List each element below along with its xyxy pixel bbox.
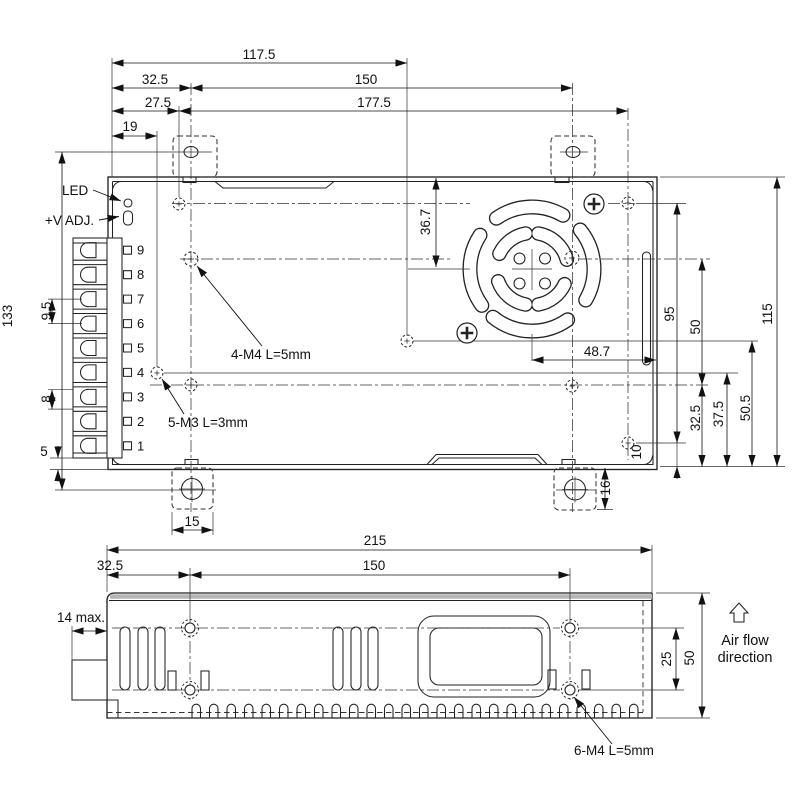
terminal-number-labels: 9 8 7 6 5 4 3 2 1 — [137, 243, 144, 454]
dim-32-5-side: 32.5 — [97, 558, 123, 573]
dim-37-5: 37.5 — [711, 401, 726, 427]
mounting-tabs — [172, 136, 596, 510]
top-seam-slot — [215, 182, 334, 189]
dim-177-5: 177.5 — [357, 95, 391, 110]
terminal-pin-marks — [124, 246, 132, 450]
dim-117-5: 117.5 — [243, 47, 276, 62]
side-dimension-lines — [72, 550, 702, 718]
psu-mechanical-drawing: 9 8 7 6 5 4 3 2 1 — [0, 0, 800, 800]
leader-6m4 — [574, 697, 612, 744]
mounting-tab — [551, 136, 595, 177]
mounting-tab — [172, 468, 213, 509]
fan-hub-hole — [514, 253, 525, 264]
dim-32-5: 32.5 — [142, 72, 168, 87]
note-4m4: 4-M4 L=5mm — [231, 347, 311, 362]
side-extension-lines — [72, 545, 710, 718]
top-view: 9 8 7 6 5 4 3 2 1 — [0, 47, 785, 535]
dim-50: 50 — [688, 319, 703, 334]
side-vent-slot — [643, 252, 651, 365]
terminal-block: 9 8 7 6 5 4 3 2 1 — [73, 238, 144, 458]
dim-16: 16 — [598, 480, 613, 495]
led-indicator-icon — [124, 199, 132, 207]
airflow-arrow-icon — [730, 603, 748, 622]
leader-vadj — [99, 217, 119, 221]
bottom-vent-slots — [192, 704, 638, 717]
fan-hub-hole — [540, 278, 551, 289]
leader-5m3 — [162, 379, 184, 414]
dim-50-5: 50.5 — [738, 395, 753, 421]
terminal-number: 2 — [137, 414, 144, 429]
terminal-number: 5 — [137, 341, 144, 356]
dim-48-7: 48.7 — [584, 344, 610, 359]
terminal-number: 6 — [137, 316, 144, 331]
dim-150: 150 — [355, 72, 378, 87]
note-5m3: 5-M3 L=3mm — [168, 415, 248, 430]
dim-36-7: 36.7 — [418, 209, 433, 235]
terminal-number: 8 — [137, 267, 144, 282]
terminal-block-side — [72, 660, 107, 700]
led-label: LED — [62, 183, 89, 198]
terminal-number: 9 — [137, 243, 144, 258]
terminal-number: 3 — [137, 389, 144, 404]
fan-hub-hole — [514, 278, 525, 289]
airflow-label-2: direction — [718, 650, 773, 666]
dim-8: 8 — [39, 395, 54, 403]
dim-32-5-right: 32.5 — [688, 405, 703, 431]
dimension-lines-top — [52, 63, 777, 530]
side-features — [120, 616, 638, 718]
airflow-label-1: Air flow — [721, 633, 769, 649]
side-centerlines — [112, 568, 684, 700]
vadj-label: +V ADJ. — [45, 213, 94, 228]
label-recess-inner — [430, 628, 542, 685]
dim-15: 15 — [184, 514, 199, 529]
terminal-number: 7 — [137, 292, 144, 307]
dim-115: 115 — [760, 303, 775, 325]
dim-19: 19 — [122, 119, 137, 134]
fan-grille — [470, 207, 594, 331]
tab-notch — [562, 460, 575, 465]
leader-4m4 — [197, 266, 262, 346]
voltage-adjust-pot-icon — [124, 211, 133, 225]
dim-150-side: 150 — [363, 558, 386, 573]
dim-95: 95 — [662, 306, 677, 321]
dim-25: 25 — [659, 651, 674, 666]
note-6m4: 6-M4 L=5mm — [574, 743, 654, 758]
bottom-step — [107, 700, 118, 718]
dim-50-side: 50 — [682, 650, 697, 665]
mechanical-drawing-page: 9 8 7 6 5 4 3 2 1 — [0, 0, 800, 800]
bottom-seam-slot — [427, 455, 547, 465]
terminal-number: 4 — [137, 365, 144, 380]
dim-27-5: 27.5 — [145, 95, 171, 110]
dim-14-max: 14 max. — [57, 610, 105, 625]
tab-notch — [185, 460, 198, 465]
leader-led — [93, 190, 121, 201]
dim-10: 10 — [629, 444, 644, 459]
side-view: 215 32.5 150 14 max. 25 50 6-M4 L=5mm Ai… — [57, 533, 772, 758]
dim-133: 133 — [0, 305, 15, 328]
dim-9-5: 9.5 — [39, 302, 54, 321]
fan-hub-hole — [540, 253, 551, 264]
terminal-number: 1 — [137, 438, 144, 453]
dim-215: 215 — [364, 533, 387, 548]
side-texts: 215 32.5 150 14 max. 25 50 6-M4 L=5mm Ai… — [57, 533, 772, 758]
extension-lines-top — [48, 58, 785, 535]
front-panel-indicators — [124, 199, 133, 225]
dim-5: 5 — [40, 444, 48, 459]
side-outline — [72, 593, 652, 718]
